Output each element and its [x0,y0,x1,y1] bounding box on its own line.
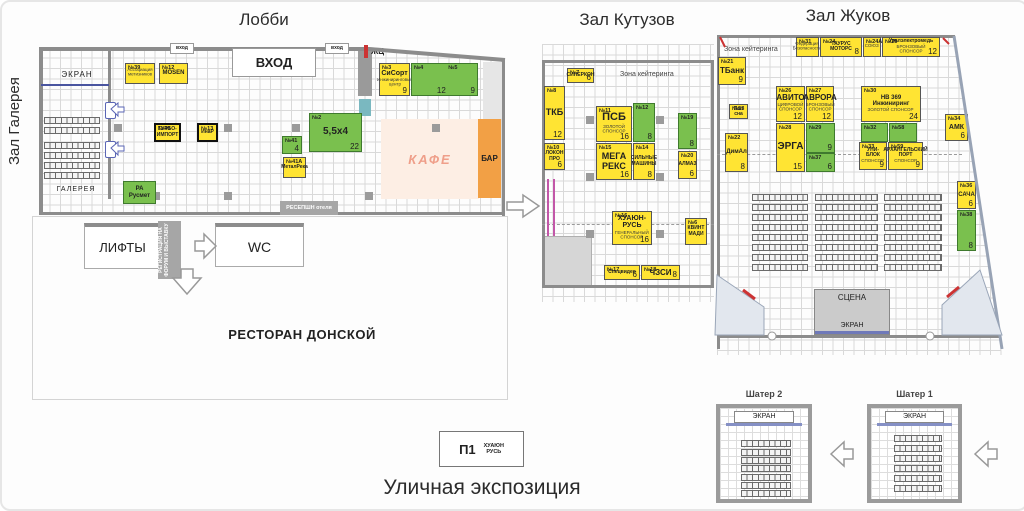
zh-red-mark [364,45,368,58]
stand-size: 12 [928,47,937,56]
seat-row [884,204,942,211]
stand-№58: №58 [889,123,917,142]
seat-row [815,204,878,211]
lobby-right-wall [502,59,505,216]
stand-name: ДимАл [726,149,747,155]
stand-№22: №22ДимАл8 [725,133,748,172]
stand-size: 8 [690,139,694,148]
stand-name: СиСорт [381,70,407,77]
stand-size: 9 [916,160,920,169]
stand-№15: №15МЕГА РЕКС16 [596,143,632,180]
stand-sub: Ассоциация метизников [127,69,152,78]
entrance-small-label-1: вход [170,43,194,54]
zhukov-bottom-wall [717,335,1000,338]
stand-sub: СПОНСОР [894,159,917,164]
stand-size: 6 [690,169,694,178]
stand-name: СИЛЬНЫЕ МАШИНЫ [631,156,657,167]
zhukov-catering-label: Зона кейтеринга [724,46,814,53]
tent1-title: Шатер 1 [867,389,962,399]
seat-row [884,224,942,231]
pillar [365,192,373,200]
gallery-door-2 [105,141,116,158]
stand-size: 16 [640,235,649,244]
stand-size: 22 [350,142,359,151]
seat-row [815,234,878,241]
stand-size: 12 [437,86,446,95]
stand-№41: №414 [282,136,302,154]
cafe-label: КАФЕ [408,152,451,167]
seat-row [752,234,808,241]
stand-size: 6 [558,160,562,169]
pillar [656,173,664,181]
seat-row [884,234,942,241]
wc-box: WC [215,223,304,267]
stand-№2: №25,5x422 [309,113,362,152]
stand-sub: СОЮЗ [865,45,879,50]
lifts-box: ЛИФТЫ [84,223,161,269]
lobby-title: Лобби [214,10,314,30]
stand-№28: №28ЭРГА15 [776,123,805,172]
stand-№13: №13ИнаР [197,123,218,142]
kutuzov-gray-zone [543,236,592,288]
stand-size: 12 [822,112,831,121]
seat-row [894,445,942,452]
stand-name: ПСБ [602,112,626,124]
zhukov-title: Зал Жуков [788,6,908,26]
stand-№6: №6КВИНТ МАДИ [685,218,707,245]
seat-row [752,244,808,251]
stand-size: 8 [855,47,859,56]
pillar [656,116,664,124]
hotel-reception-label: РЕСЕПШН отеля [280,201,338,215]
stand-size: 6 [969,199,973,208]
seat-row [815,224,878,231]
stand-name: РА Русмет [125,186,154,199]
stand-№29: №299 [806,123,835,153]
stand-№53: №53Пап сна [729,104,748,119]
stand-№12: №12MOSEN [159,63,188,84]
stand-size: 8 [741,162,745,171]
stand-№12: №128 [633,103,655,142]
lobby-left-wall [39,47,43,215]
seat-row [44,162,100,169]
stand-№4: №4№5129 [411,63,478,96]
stand-name: Пап сна [731,107,746,118]
gallery-wall-1 [108,51,111,103]
tent1-screen-bar [877,423,952,426]
stage-screen-label: ЭКРАН [815,322,889,329]
stand-№26: №26АВИТОЦИФРОВОЙ СПОНСОР12 [776,86,805,122]
tent2-screen-label: ЭКРАН [734,411,794,423]
tent1-screen-label: ЭКРАН [885,411,944,423]
stand-№30: №30НВ 369 ИнжинирингЗОЛОТОЙ СПОНСОР24 [861,86,921,122]
seat-row [894,465,942,472]
seat-row [752,214,808,221]
stand-name: MOSEN [162,70,184,76]
stand-РА-Русмет: РА Русмет [123,181,156,204]
bar-label: БАР [481,154,498,163]
stand-size: 8 [969,241,973,250]
pillar [292,124,300,132]
stand-size: 15 [793,162,802,171]
seat-row [752,204,808,211]
registration-box: РЕГИСТРАЦИЯ НА ФОРУМ И ВЫСТАВКУ [158,221,181,279]
p1-label: П1 [459,442,476,457]
lobby-top-wall [39,47,370,51]
stand-№41А: №41АМеталРека [283,157,306,178]
stand-name: АЛМАЗ [678,162,696,167]
stand-name: АВИТО [776,94,804,102]
seat-row [815,194,878,201]
street-exposition-title: Уличная экспозиция [352,476,612,500]
kutuzov-magenta-feature [547,179,555,236]
seat-row [815,264,878,271]
seat-row [884,254,942,261]
stand-№24А: №24АСОЮЗ [863,37,881,57]
stand-size: 6 [828,162,832,171]
seat-row [884,244,942,251]
registration-label: РЕГИСТРАЦИЯ НА ФОРУМ И ВЫСТАВКУ [159,221,181,279]
stand-№40: №40ТУРБО-ИМПОРТ [154,123,181,142]
stand-№3: №3СиСортИнжиниринговый центр9 [379,63,410,96]
stand-sub: Инжиниринговый центр [377,79,413,88]
seat-row [752,264,808,271]
stand-name: ИнаР [201,130,214,135]
stand-size: 8 [673,270,677,279]
stand-size: 6 [633,270,637,279]
stand-name: МЕГА РЕКС [598,152,630,171]
seat-row [884,194,942,201]
pillar [586,173,594,181]
bar-zone: БАР [478,119,501,198]
seat-row [44,117,100,124]
seat-row [884,264,942,271]
tent-arrow-icon-1 [831,442,853,466]
stand-№19: №198 [678,113,697,149]
seat-row [741,490,791,497]
tent2-title: Шатер 2 [716,389,812,399]
seat-row [815,214,878,221]
seat-row [894,435,942,442]
stand-name: ТУРБО-ИМПОРТ [157,127,179,138]
gallery-screen-label: ЭКРАН [47,70,107,79]
gallery-wall-2 [108,118,111,142]
stand-№11: №11ПСБЗОЛОТОЙ СПОНСОР16 [596,106,632,142]
stand-name: АРХАНГЕЛЬСКИЙ ПОРТ [883,148,927,159]
seat-row [741,474,791,481]
kutuzov-entry-arrow-icon [507,195,539,217]
entrance-box: ВХОД [232,48,316,77]
stand-name: МеталРека [281,165,308,170]
seat-row [741,457,791,464]
kutuzov-bottom-wall [542,285,714,288]
stand-name: КВИНТ МАДИ [687,226,705,237]
stand-size2: 9 [471,86,475,95]
stand-size: 9 [828,143,832,152]
stand-№38: №388 [957,210,976,251]
pillar [114,124,122,132]
stand-name: ЧЗСИ [650,269,672,277]
kutuzov-catering-label: Зона кейтеринга [620,71,715,78]
seat-row [815,244,878,251]
gallery-screen-bar [41,84,109,86]
seat-row [894,455,942,462]
seat-row [741,440,791,447]
stand-name: ТКБ [546,108,563,117]
restaurant-label: РЕСТОРАН ДОНСКОЙ [182,327,422,342]
stand-№18: №18ЧЗСИ8 [641,265,680,280]
stand-№34: №34АМК6 [945,114,968,141]
stand-№17: №17Спецвидео6 [604,265,640,280]
p1-company-label: ХУАЮН РУСЬ [484,443,504,455]
tent2-screen-bar [726,423,802,426]
stage-label: СЦЕНА [815,293,889,302]
stand-№25: №25УралэлектромедьБРОНЗОВЫЙ СПОНСОР12 [882,37,940,57]
stand-№7: №7СИНЕРКОН6 [567,68,594,83]
stand-size: 4 [295,144,299,153]
seat-row [884,214,942,221]
stand-№27: №27АВРОРАБРОНЗОВЫЙ СПОНСОР12 [806,86,834,122]
seat-row [44,152,100,159]
stage-screen-bar [815,331,889,334]
stand-size: 16 [620,170,629,179]
stand-name: ЭРГА [777,142,803,153]
kutuzov-right-wall [711,60,714,288]
stand-№21: №21ТБанк9 [718,57,746,85]
stand-name: НВ 369 Инжиниринг [863,95,919,108]
gallery-wall-3 [108,157,111,199]
stand-size: 9 [403,86,407,95]
pillar [586,116,594,124]
seat-row [894,475,942,482]
stand-sub: ЗОЛОТОЙ СПОНСОР [868,108,914,113]
stand-size: 24 [909,112,918,121]
seat-row [752,194,808,201]
kutuzov-title: Зал Кутузов [567,10,687,30]
stand-size: 6 [961,131,965,140]
stand-№10: №10ЛОКОН ПРО6 [544,143,565,170]
stand-size: 12 [553,130,562,139]
seat-row [741,449,791,456]
pillar [656,230,664,238]
entrance-small-label-2: вход [325,43,349,54]
pillar [586,230,594,238]
seat-row [752,254,808,261]
stand-name: ТБанк [720,67,744,75]
stand-№14: №14СИЛЬНЫЕ МАШИНЫ8 [633,143,655,180]
lobby-bottom-wall [39,212,505,215]
stand-size: 6 [587,73,591,82]
stand-size: 16 [620,132,629,141]
stand-№36: №36САЧА6 [957,181,976,209]
stand-name: ХУАЮН-РУСЬ [614,215,650,230]
stage-box: СЦЕНА ЭКРАН [814,289,890,335]
stand-№37: №376 [806,153,835,172]
stand-name: 5,5x4 [323,127,348,138]
tent-arrow-icon-2 [975,442,997,466]
floor-plan-canvas: Лобби Зал Кутузов Зал Жуков Зал Галерея … [0,0,1024,511]
seat-row [894,485,942,492]
stand-№32: №32 [861,123,888,142]
pillar [224,192,232,200]
zh-label: ЖЦ [371,47,384,56]
seat-row [44,172,100,179]
kutuzov-top-wall [542,60,714,63]
stand-size: 9 [739,75,743,84]
seat-row [741,465,791,472]
pillar [224,124,232,132]
stand-№16: №16ХУАЮН-РУСЬГЕНЕРАЛЬНЫЙ СПОНСОР16 [612,211,652,245]
p1-box: П1 ХУАЮН РУСЬ [439,431,524,467]
seat-row [44,127,100,134]
seat-row [741,482,791,489]
seat-row [815,254,878,261]
seat-row [44,142,100,149]
stand-№59: №59АРХАНГЕЛЬСКИЙ ПОРТСПОНСОР9 [888,142,923,170]
stand-name: УНИ-БЛОК [861,148,885,159]
stand-name: Уралэлектромедь [889,39,933,44]
seat-row [752,224,808,231]
stand-№24: №24ТАУРУС МОТОРС8 [820,37,862,57]
stand-size: 12 [793,112,802,121]
stand-size: 8 [648,132,652,141]
stand-№39: №39Ассоциация метизников [125,63,155,84]
cafe-zone: КАФЕ [381,119,479,199]
pillar [432,124,440,132]
stand-№8: №8ТКБ12 [544,86,565,140]
gallery-label: ГАЛЕРЕЯ [46,186,106,193]
gallery-hall-title: Зал Галерея [6,54,28,189]
stand-size: 8 [648,170,652,179]
stand-№20: №20АЛМАЗ6 [678,151,697,179]
stand-name: САЧА [958,192,975,198]
stand-name: АВРОРА [803,94,836,102]
gallery-door-1 [105,102,116,119]
stand-size: 9 [880,160,884,169]
